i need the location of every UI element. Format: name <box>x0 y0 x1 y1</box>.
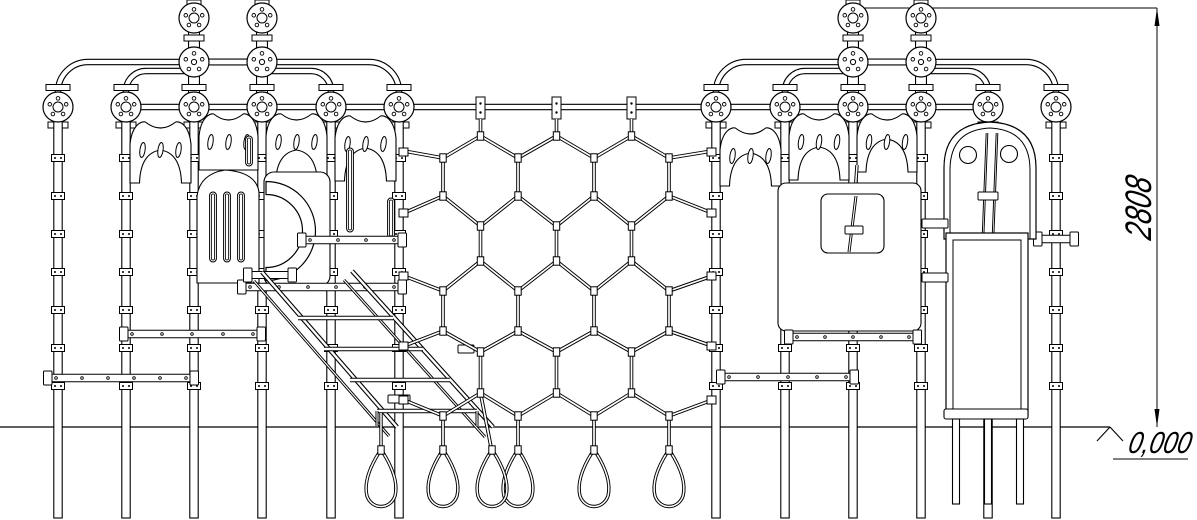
svg-text:2808: 2808 <box>1119 171 1160 243</box>
svg-text:0,000: 0,000 <box>1126 425 1196 460</box>
